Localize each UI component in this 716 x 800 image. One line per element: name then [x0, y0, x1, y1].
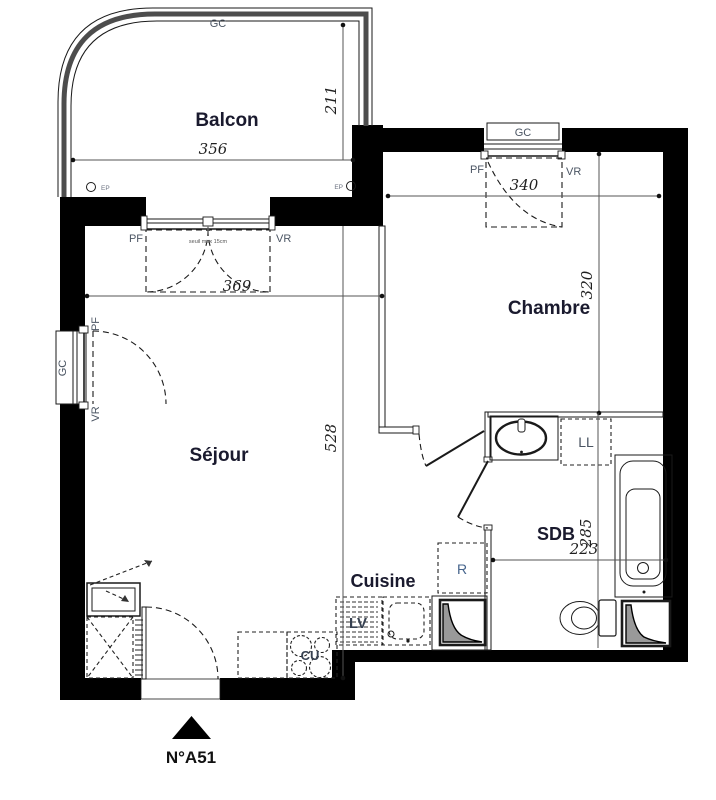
bathtub-drain-icon [638, 563, 649, 574]
door-leaf [142, 607, 146, 679]
label-vr: VR [566, 166, 581, 178]
wall-east [663, 128, 688, 662]
room-label-sdb: SDB [537, 524, 575, 544]
door-jamb [413, 426, 419, 434]
window-swing [93, 331, 166, 404]
label-pf: PF [90, 317, 102, 331]
door-swing [146, 607, 218, 679]
entrance-marker: N°A51 [166, 716, 216, 767]
window-sejour-south: PF VR seuil max 15cm [129, 197, 291, 292]
room-label-cuisine: Cuisine [350, 571, 415, 591]
label-gc-west: GC [57, 360, 69, 377]
dim-chambre-width: 340 [510, 176, 539, 194]
dim-chambre-depth: 320 [578, 270, 596, 299]
label-cu: CU [301, 648, 320, 663]
label-gc-railing: GC [210, 18, 227, 30]
wall-balcony-left [60, 197, 146, 226]
toilet-bowl [560, 602, 600, 635]
dim-sejour-depth: 528 [322, 424, 340, 453]
bathtub-outer [620, 461, 666, 586]
label-lv: LV [349, 615, 367, 632]
door-leaf [426, 431, 484, 466]
railing-band [64, 14, 366, 197]
door-leaf [458, 461, 488, 517]
toilet-bowl-inner [572, 607, 597, 629]
worktop-slot [238, 632, 287, 678]
room-label-balcon: Balcon [195, 110, 258, 131]
ep-drain-left-icon [87, 183, 96, 192]
partition-hall [379, 427, 416, 433]
window-jamb [79, 402, 88, 409]
door-entrance [141, 607, 220, 699]
kitchen-sink-slot [383, 597, 430, 645]
toilet-tank [599, 600, 616, 636]
window-swing [488, 162, 562, 227]
dim-balcon-depth: 211 [322, 86, 340, 116]
door-swing [458, 517, 488, 528]
window-jamb [79, 326, 88, 333]
label-ep-right: EP [334, 184, 343, 191]
label-seuil: seuil max 15cm [189, 239, 228, 245]
label-vr: VR [276, 233, 291, 245]
entrance-arrow-icon [172, 716, 211, 739]
dim-balcon-width: 356 [199, 140, 228, 158]
label-r: R [457, 561, 467, 577]
label-ep-left: EP [101, 185, 110, 192]
floor-plan: GC EP EP PF VR seuil max 15cm GC PF [0, 0, 716, 800]
partitions [379, 226, 663, 650]
label-pf: PF [470, 164, 484, 176]
partition-sejour-chambre [379, 226, 385, 432]
wall-south-right [220, 678, 355, 700]
unit-number: N°A51 [166, 748, 216, 767]
supply-arrow-line [90, 561, 152, 585]
railing-inner [71, 21, 359, 197]
window-jamb [269, 216, 275, 230]
label-vr: VR [90, 406, 102, 421]
room-label-sejour: Séjour [189, 445, 249, 466]
dot [643, 591, 646, 594]
door-chambre [419, 431, 484, 466]
label-ll: LL [578, 434, 594, 450]
window-mullion [203, 217, 213, 226]
label-gc-chambre: GC [515, 127, 532, 139]
sink-faucet-icon [388, 631, 394, 637]
wall-north-left [375, 128, 484, 152]
wall-west-lower [60, 404, 85, 700]
label-pf: PF [129, 233, 143, 245]
dim-sejour-width: 369 [223, 277, 252, 295]
door-swing [419, 434, 426, 466]
door-threshold [141, 679, 220, 699]
door-sdb [458, 461, 488, 528]
bathtub-inner [626, 489, 660, 579]
room-label-chambre: Chambre [508, 298, 590, 319]
wall-south-left [60, 678, 141, 700]
wall-south-kitchen [345, 650, 688, 662]
window-jamb [141, 216, 147, 230]
faucet-icon [518, 419, 525, 432]
dot [406, 639, 409, 642]
drain-dot [520, 451, 523, 454]
floor-plan-svg: GC EP EP PF VR seuil max 15cm GC PF [0, 0, 716, 800]
